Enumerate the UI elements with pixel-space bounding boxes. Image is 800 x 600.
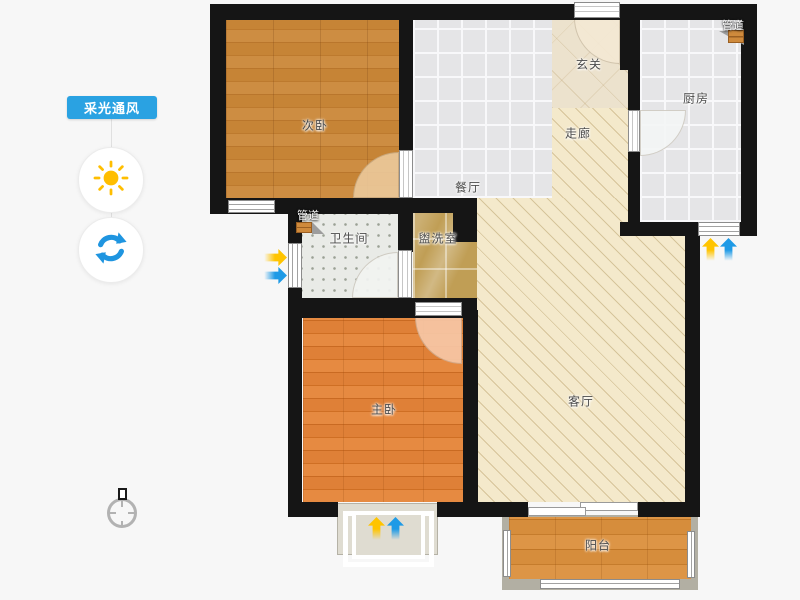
room-label-living: 客厅 <box>568 393 594 410</box>
bathroom-window <box>288 243 302 288</box>
floorplan-app: 采光通风 <box>0 0 800 600</box>
balcony-sliding-door <box>528 507 586 516</box>
room-label-bathroom: 卫生间 <box>329 230 368 247</box>
light-arrow-icon <box>263 249 287 266</box>
light-arrow-icon <box>702 238 719 262</box>
balcony-window-bottom <box>540 579 680 589</box>
room-label-master-bedroom: 主卧 <box>371 401 397 418</box>
wall <box>638 502 700 517</box>
kitchen-window <box>698 222 740 236</box>
room-dining <box>413 20 552 198</box>
wall <box>398 213 413 252</box>
room-label-corridor: 走廊 <box>565 125 591 142</box>
wall <box>210 4 757 20</box>
room-label-secondary-bedroom: 次卧 <box>302 117 328 134</box>
bathroom-door <box>398 250 412 298</box>
entry-door <box>574 2 620 18</box>
refresh-icon <box>94 231 128 269</box>
bedroom2-window <box>228 200 275 213</box>
master-door <box>415 302 462 316</box>
wall <box>628 70 640 110</box>
room-label-entry-hall: 玄关 <box>576 56 602 73</box>
wind-arrow-icon <box>263 267 287 284</box>
balcony-window-left <box>503 530 511 577</box>
wall <box>685 230 700 502</box>
pipe-label-bathroom: 管道 <box>297 207 319 223</box>
wall <box>463 310 478 502</box>
room-label-kitchen: 厨房 <box>683 90 709 107</box>
room-living <box>477 198 685 502</box>
balcony-sliding-door <box>580 502 638 511</box>
wall <box>437 502 528 517</box>
room-label-balcony: 阳台 <box>585 537 611 554</box>
lighting-ventilation-button[interactable]: 采光通风 <box>67 96 157 119</box>
wall <box>288 502 338 517</box>
wall <box>399 4 413 152</box>
bedroom2-door <box>399 150 413 198</box>
room-label-washroom: 盥洗室 <box>418 230 457 247</box>
bay-window-frame <box>352 511 425 559</box>
connector-line <box>111 119 112 147</box>
balcony-window-right <box>687 531 695 578</box>
wind-arrow-icon <box>720 238 737 262</box>
sun-icon <box>92 159 130 201</box>
pipe-label-kitchen: 管道 <box>722 17 744 33</box>
wall <box>210 4 226 214</box>
sun-tool-button[interactable] <box>78 147 144 213</box>
kitchen-door <box>628 110 640 152</box>
refresh-tool-button[interactable] <box>78 217 144 283</box>
wall <box>620 4 640 70</box>
room-label-dining: 餐厅 <box>455 179 481 196</box>
pipe-shaft-bathroom <box>296 222 312 233</box>
